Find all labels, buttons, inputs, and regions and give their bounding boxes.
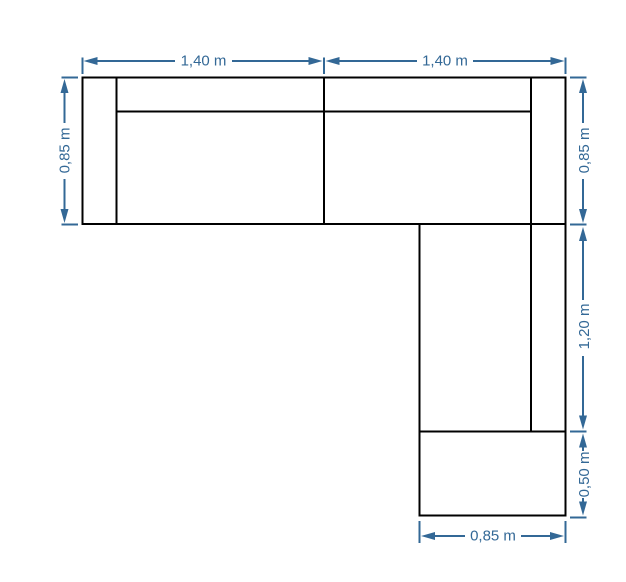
svg-text:1,40 m: 1,40 m <box>422 53 468 70</box>
svg-text:1,40 m: 1,40 m <box>181 53 227 70</box>
svg-text:1,20 m: 1,20 m <box>576 304 593 350</box>
svg-text:0,85 m: 0,85 m <box>576 128 593 174</box>
svg-text:0,85 m: 0,85 m <box>57 128 74 174</box>
svg-text:0,85 m: 0,85 m <box>470 528 516 545</box>
svg-text:0,50 m: 0,50 m <box>576 452 593 498</box>
